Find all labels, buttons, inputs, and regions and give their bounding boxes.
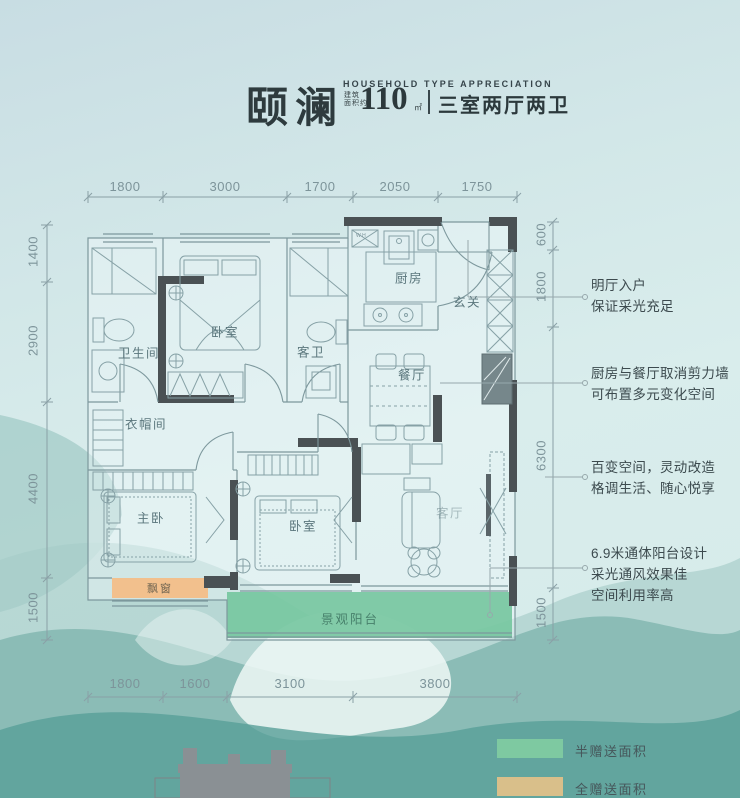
annotation-flexible-space: 百变空间，灵动改造 格调生活、随心悦享 xyxy=(591,457,740,499)
legend-label-half-gift: 半赠送面积 xyxy=(575,741,648,760)
dim-left-4: 1500 xyxy=(26,578,41,638)
dim-top-1: 1800 xyxy=(95,179,155,194)
dim-top-2: 3000 xyxy=(195,179,255,194)
title-divider xyxy=(428,90,430,114)
room-label-bathroom: 卫生间 xyxy=(118,343,160,362)
area-value: 110 xyxy=(360,81,408,118)
room-label-kitchen: 厨房 xyxy=(395,268,423,287)
appliance-label: W H xyxy=(356,233,366,239)
room-label-living: 客厅 xyxy=(436,503,464,522)
room-label-bedroom-bottom: 卧室 xyxy=(289,516,317,535)
dim-right-1: 600 xyxy=(534,205,549,265)
building-footprint xyxy=(155,748,330,798)
room-label-bay-window: 飘窗 xyxy=(147,580,173,596)
legend-swatch-half-gift xyxy=(497,739,563,758)
annotation-foyer-light: 明厅入户 保证采光充足 xyxy=(591,275,740,317)
room-label-master: 主卧 xyxy=(137,508,165,527)
annotation-line: 6.9米通体阳台设计 xyxy=(591,543,740,564)
dim-top-4: 2050 xyxy=(365,179,425,194)
dim-top-5: 1750 xyxy=(447,179,507,194)
dim-bottom-1: 1800 xyxy=(95,676,155,691)
dim-right-4: 1500 xyxy=(534,583,549,643)
legend-label-full-gift: 全赠送面积 xyxy=(575,779,648,798)
floorplan-page: 颐澜 HOUSEHOLD TYPE APPRECIATION 建筑 面积约 11… xyxy=(0,0,740,798)
dim-left-3: 4400 xyxy=(26,459,41,519)
room-label-dining: 餐厅 xyxy=(398,365,426,384)
annotation-balcony-design: 6.9米通体阳台设计 采光通风效果佳 空间利用率高 xyxy=(591,543,740,606)
dim-top-3: 1700 xyxy=(290,179,350,194)
dim-bottom-4: 3800 xyxy=(405,676,465,691)
room-label-bedroom-top: 卧室 xyxy=(211,322,239,341)
annotation-kitchen-dining: 厨房与餐厅取消剪力墙 可布置多元变化空间 xyxy=(591,363,740,405)
dim-right-2: 1800 xyxy=(534,257,549,317)
room-label-cloakroom: 衣帽间 xyxy=(125,414,167,433)
annotation-line: 保证采光充足 xyxy=(591,296,740,317)
annotation-line: 格调生活、随心悦享 xyxy=(591,478,740,499)
annotation-line: 空间利用率高 xyxy=(591,585,740,606)
room-label-balcony: 景观阳台 xyxy=(321,609,379,628)
annotation-line: 百变空间，灵动改造 xyxy=(591,457,740,478)
annotation-line: 厨房与餐厅取消剪力墙 xyxy=(591,363,740,384)
dim-left-2: 2900 xyxy=(26,311,41,371)
area-unit: ㎡ xyxy=(414,102,422,113)
dim-bottom-3: 3100 xyxy=(260,676,320,691)
room-label-guest-bath: 客卫 xyxy=(297,342,325,361)
unit-layout: 三室两厅两卫 xyxy=(438,89,570,118)
annotation-line: 明厅入户 xyxy=(591,275,740,296)
annotation-line: 可布置多元变化空间 xyxy=(591,384,740,405)
dim-bottom-2: 1600 xyxy=(165,676,225,691)
legend-swatches xyxy=(497,739,563,796)
project-name: 颐澜 xyxy=(246,74,344,135)
dim-left-1: 1400 xyxy=(26,222,41,282)
room-label-foyer: 玄关 xyxy=(453,292,481,311)
annotation-line: 采光通风效果佳 xyxy=(591,564,740,585)
legend-swatch-full-gift xyxy=(497,777,563,796)
dim-right-3: 6300 xyxy=(534,426,549,486)
